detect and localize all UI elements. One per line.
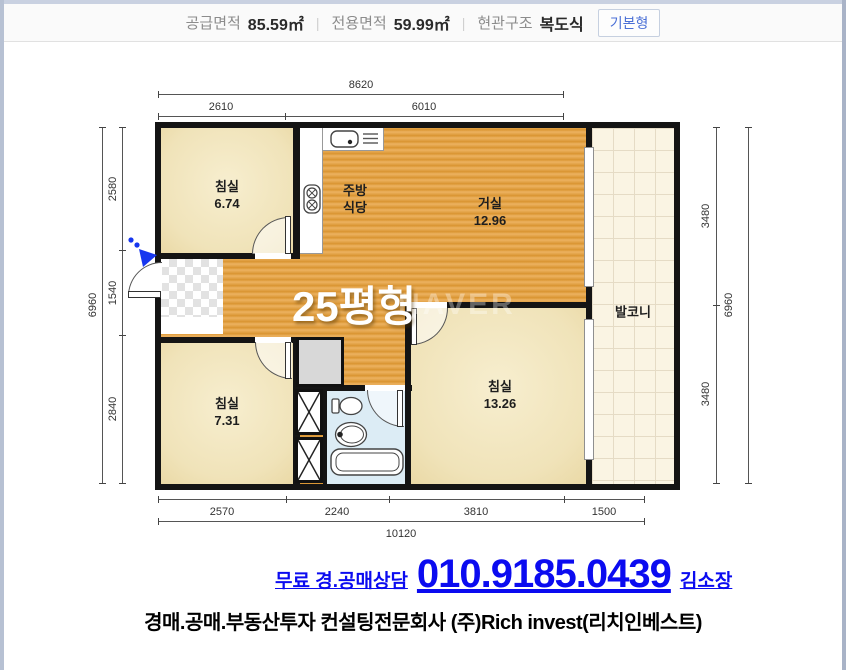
dim-line xyxy=(158,521,645,522)
dim-bottom-seg1: 2570 xyxy=(210,506,234,518)
dim-bottom-seg4: 1500 xyxy=(592,506,616,518)
dim-tick xyxy=(99,127,106,128)
room-name: 식당 xyxy=(343,200,367,217)
room-name: 침실 xyxy=(214,179,239,196)
dim-bottom-seg2: 2240 xyxy=(325,506,349,518)
frame-left-strip xyxy=(0,0,4,670)
dim-right-total: 6960 xyxy=(723,293,735,317)
room-name: 침실 xyxy=(484,379,517,396)
dim-tick xyxy=(745,483,752,484)
dim-tick xyxy=(119,127,126,128)
floor-plan-page: 공급면적 85.59㎡ | 전용면적 59.99㎡ | 현관구조 복도식 기본형 xyxy=(0,0,846,670)
room-name: 발코니 xyxy=(615,305,651,322)
phone-number[interactable]: 010.9185.0439 xyxy=(417,552,671,597)
dim-bottom-seg3: 3810 xyxy=(464,506,488,518)
dim-line xyxy=(102,127,103,483)
info-bar: 공급면적 85.59㎡ | 전용면적 59.99㎡ | 현관구조 복도식 기본형 xyxy=(4,4,842,42)
dim-tick xyxy=(745,127,752,128)
basic-type-button[interactable]: 기본형 xyxy=(598,9,661,37)
dim-line xyxy=(158,94,564,95)
dim-tick xyxy=(285,113,286,120)
dim-tick xyxy=(158,496,159,503)
room-area: 6.74 xyxy=(214,196,239,213)
stove-icon xyxy=(303,184,321,214)
dim-left-seg2: 1540 xyxy=(107,281,119,305)
dim-tick xyxy=(564,496,565,503)
entrance-arrow-icon xyxy=(126,236,158,268)
bathtub-icon xyxy=(330,448,404,476)
contact-line: 무료 경.공매상담 010.9185.0439 김소장 xyxy=(275,552,732,597)
dim-tick xyxy=(119,250,126,251)
dim-line xyxy=(158,116,564,117)
dim-tick xyxy=(158,113,159,120)
entrance-structure-value: 복도식 xyxy=(540,11,584,35)
bedroom3-label: 침실 13.26 xyxy=(484,379,517,413)
sink-icon xyxy=(330,130,380,148)
agent-name: 김소장 xyxy=(680,566,732,593)
dim-tick xyxy=(563,113,564,120)
separator: | xyxy=(462,15,466,31)
dim-right-seg1: 3480 xyxy=(700,204,712,228)
dim-right-seg2: 3480 xyxy=(700,382,712,406)
dim-tick xyxy=(158,518,159,525)
door-leaf xyxy=(285,216,291,254)
room-area: 12.96 xyxy=(474,213,507,230)
dim-tick xyxy=(286,496,287,503)
room-name: 거실 xyxy=(474,196,507,213)
room-name: 침실 xyxy=(214,396,239,413)
washbasin-icon xyxy=(334,421,368,448)
living-room-label: 거실 12.96 xyxy=(474,196,507,230)
bedroom1-label: 침실 6.74 xyxy=(214,179,239,213)
dim-top-total: 8620 xyxy=(349,79,373,91)
door-leaf xyxy=(397,390,403,427)
kitchen-label: 주방 식당 xyxy=(343,183,367,217)
living-window xyxy=(584,147,594,287)
dim-tick xyxy=(644,518,645,525)
dim-bottom-total: 10120 xyxy=(386,528,417,540)
dim-line xyxy=(122,127,123,483)
dim-tick xyxy=(119,335,126,336)
dim-line xyxy=(748,127,749,483)
exclusive-area-value: 59.99㎡ xyxy=(394,11,450,35)
entrance-structure-label: 현관구조 xyxy=(477,12,532,33)
entrance-door-leaf xyxy=(128,291,161,298)
company-name: 경매.공매.부동산투자 컨설팅전문회사 (주)Rich invest(리치인베스… xyxy=(0,606,846,635)
dim-top-seg1: 2610 xyxy=(209,101,233,113)
supply-area-value: 85.59㎡ xyxy=(248,11,304,35)
balcony-label: 발코니 xyxy=(615,305,651,322)
dim-top-seg2: 6010 xyxy=(412,101,436,113)
dim-tick xyxy=(119,483,126,484)
dim-tick xyxy=(158,91,159,98)
dim-tick xyxy=(99,483,106,484)
supply-area-label: 공급면적 xyxy=(186,12,241,33)
room-name: 주방 xyxy=(343,183,367,200)
dim-tick xyxy=(713,305,720,306)
dim-tick xyxy=(644,496,645,503)
dim-tick xyxy=(563,91,564,98)
room-area: 7.31 xyxy=(214,413,239,430)
exclusive-area-label: 전용면적 xyxy=(331,12,386,33)
dim-left-total: 6960 xyxy=(87,293,99,317)
bedroom2-label: 침실 7.31 xyxy=(214,396,239,430)
bedroom3-window xyxy=(584,319,594,460)
separator: | xyxy=(316,15,320,31)
room-area: 13.26 xyxy=(484,396,517,413)
plan-size-label: 25평형 xyxy=(292,273,416,334)
frame-right-strip xyxy=(842,0,846,670)
dim-tick xyxy=(389,496,390,503)
dim-left-seg1: 2580 xyxy=(107,177,119,201)
consult-text: 무료 경.공매상담 xyxy=(275,566,408,593)
toilet-icon xyxy=(331,394,365,418)
door-leaf xyxy=(285,342,291,379)
dim-line xyxy=(158,499,645,500)
dim-tick xyxy=(713,483,720,484)
dim-left-seg3: 2840 xyxy=(107,397,119,421)
dim-tick xyxy=(713,127,720,128)
